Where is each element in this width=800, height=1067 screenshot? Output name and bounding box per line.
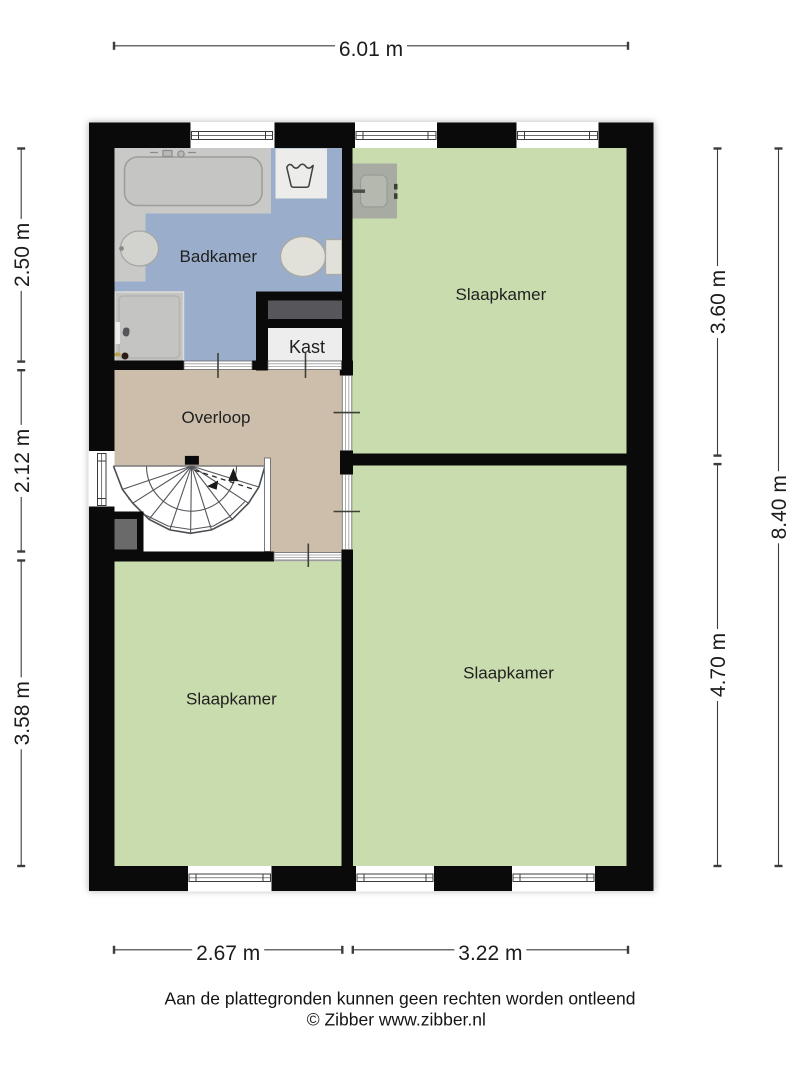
svg-text:© Zibber www.zibber.nl: © Zibber www.zibber.nl bbox=[307, 1010, 486, 1030]
svg-text:Slaapkamer: Slaapkamer bbox=[463, 664, 554, 683]
svg-text:2.50 m: 2.50 m bbox=[11, 223, 34, 287]
svg-text:4.70 m: 4.70 m bbox=[707, 633, 730, 697]
svg-text:3.58 m: 3.58 m bbox=[11, 681, 34, 745]
svg-text:2.12 m: 2.12 m bbox=[11, 429, 34, 493]
svg-text:3.60 m: 3.60 m bbox=[707, 270, 730, 334]
svg-text:Badkamer: Badkamer bbox=[180, 247, 258, 266]
svg-text:Aan de plattegronden kunnen ge: Aan de plattegronden kunnen geen rechten… bbox=[165, 988, 636, 1008]
svg-text:Kast: Kast bbox=[289, 337, 325, 357]
svg-text:Overloop: Overloop bbox=[182, 408, 251, 427]
svg-text:6.01 m: 6.01 m bbox=[339, 38, 403, 61]
svg-text:Slaapkamer: Slaapkamer bbox=[186, 690, 277, 709]
svg-text:8.40 m: 8.40 m bbox=[768, 475, 791, 539]
svg-text:2.67 m: 2.67 m bbox=[196, 942, 260, 965]
svg-text:3.22 m: 3.22 m bbox=[458, 942, 522, 965]
svg-text:Slaapkamer: Slaapkamer bbox=[456, 285, 547, 304]
